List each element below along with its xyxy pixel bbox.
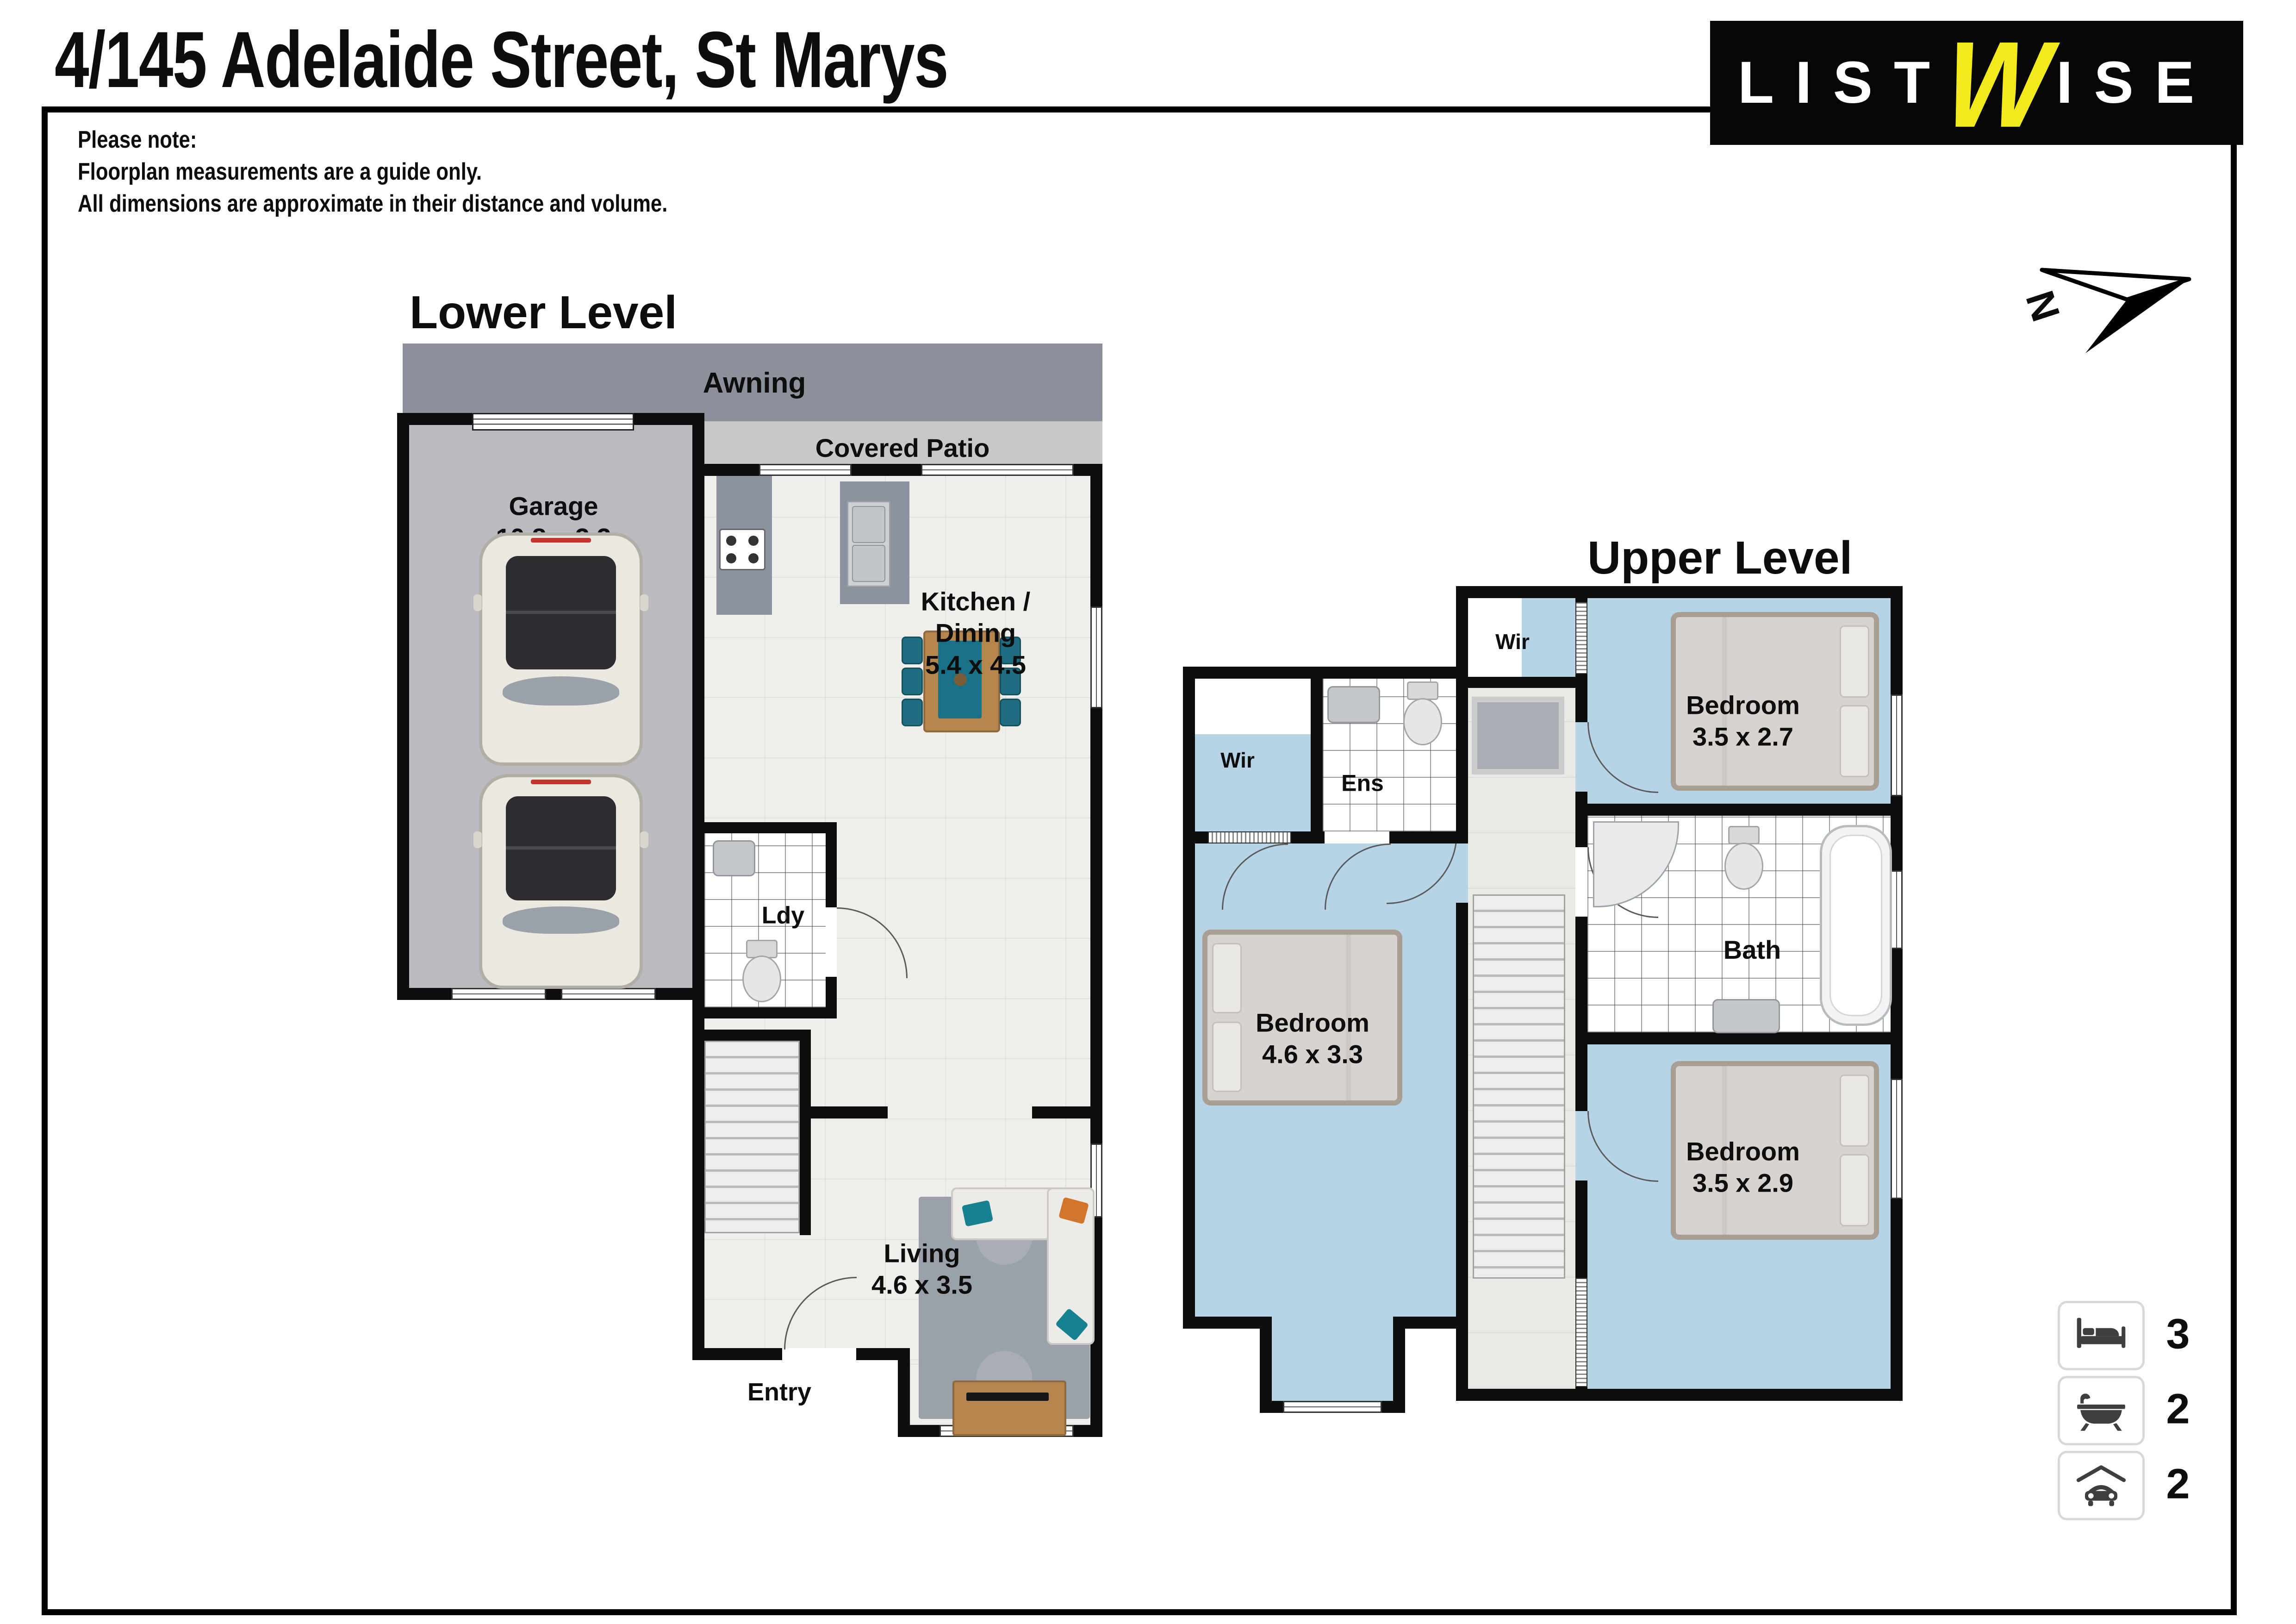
window (1090, 606, 1102, 708)
wall (1456, 586, 1903, 598)
wall (1311, 667, 1323, 843)
wall (692, 413, 704, 1360)
bath-label: Bath (1724, 934, 1781, 966)
door-gap (826, 907, 837, 977)
window (1891, 870, 1903, 949)
shower (1472, 697, 1564, 775)
living-label: Living 4.6 x 3.5 (871, 1238, 972, 1301)
ens-sink (1327, 686, 1380, 723)
page-border (42, 106, 2237, 1615)
door-gap (1575, 1111, 1587, 1181)
opening (1272, 1317, 1393, 1329)
wall (1393, 1317, 1405, 1413)
door-gap (782, 1348, 856, 1360)
bedroom3-label: Bedroom 3.5 x 2.9 (1686, 1136, 1800, 1199)
logo-text-ise: ISE (2056, 53, 2215, 112)
wall (1183, 667, 1195, 1329)
car-count: 2 (2166, 1460, 2190, 1509)
page-title: 4/145 Adelaide Street, St Marys (55, 14, 948, 106)
wall (1456, 586, 1468, 679)
logo-text-list: LIST (1738, 53, 1951, 112)
door-gap (1575, 722, 1587, 792)
wall (1456, 1389, 1903, 1401)
door-gap (1575, 847, 1587, 917)
lower-level-heading: Lower Level (410, 286, 677, 339)
kitchen-dining-label: Kitchen / Dining 5.4 x 4.5 (921, 586, 1030, 681)
wir-left-label: Wir (1220, 747, 1255, 773)
car-icon (2058, 1451, 2145, 1520)
bedroom1-label: Bedroom 3.5 x 2.7 (1686, 690, 1800, 753)
entry-label: Entry (747, 1377, 811, 1408)
wall (1183, 667, 1468, 679)
wall (1032, 1106, 1102, 1118)
wall (704, 1030, 811, 1041)
wir-top-floor-blue (1522, 598, 1575, 677)
sliding-door (1208, 831, 1291, 843)
stairs (704, 1041, 800, 1233)
car (479, 774, 643, 989)
window (1891, 694, 1903, 796)
wall (1456, 677, 1587, 688)
upper-level-heading: Upper Level (1587, 531, 1852, 585)
door-gap (1325, 831, 1389, 843)
wall (1260, 1317, 1272, 1413)
wall (800, 1030, 811, 1235)
bathtub (1820, 825, 1892, 1026)
wall (397, 413, 409, 1000)
toilet-bowl (742, 956, 781, 1002)
bath-count: 2 (2166, 1385, 2190, 1434)
tv-unit (952, 1380, 1066, 1436)
bed-icon (2058, 1301, 2145, 1370)
covered-patio-label: Covered Patio (815, 432, 990, 464)
toilet (1407, 681, 1438, 700)
laundry-sink (713, 840, 755, 876)
window (759, 464, 852, 476)
ens-label: Ens (1341, 769, 1384, 798)
bed-count: 3 (2166, 1310, 2190, 1359)
wall (1575, 804, 1903, 816)
chair (902, 699, 923, 726)
laundry-label: Ldy (762, 901, 804, 930)
wir-top-label: Wir (1495, 629, 1530, 655)
bath-icon (2058, 1376, 2145, 1445)
wall (1456, 679, 1468, 1401)
bedroom2-label: Bedroom 4.6 x 3.3 (1256, 1007, 1369, 1071)
window (1891, 1079, 1903, 1199)
nook-floor (1272, 1317, 1393, 1401)
fridge (847, 501, 890, 587)
sliding-door (1575, 602, 1587, 674)
stairs (1473, 894, 1565, 1279)
wall (898, 1348, 910, 1437)
stove (719, 529, 765, 570)
bath-sink (1712, 999, 1780, 1033)
floorplan-page: 4/145 Adelaide Street, St Marys Please n… (0, 0, 2296, 1624)
car (479, 532, 643, 766)
window (561, 988, 656, 1000)
garage-door (472, 413, 634, 431)
window (1283, 1401, 1382, 1413)
window (921, 464, 1074, 476)
toilet-bowl (1403, 698, 1442, 745)
wall (704, 822, 837, 833)
tv (966, 1393, 1049, 1401)
wall (1575, 1032, 1903, 1044)
chair (902, 668, 923, 695)
toilet-bowl (1724, 843, 1763, 890)
sliding-door (1575, 1278, 1587, 1387)
wall (800, 1106, 888, 1118)
listwise-logo: LIST W ISE (1710, 21, 2243, 145)
wir-left-floor (1195, 679, 1311, 734)
wall (397, 988, 704, 1000)
awning-label: Awning (703, 366, 806, 401)
wall (704, 1007, 837, 1018)
wall (1575, 598, 1587, 1389)
disclaimer-note: Please note: Floorplan measurements are … (78, 124, 667, 220)
door-gap (1456, 833, 1468, 903)
toilet (1728, 826, 1760, 844)
chair (1000, 699, 1021, 726)
window (451, 988, 546, 1000)
chair (902, 637, 923, 664)
